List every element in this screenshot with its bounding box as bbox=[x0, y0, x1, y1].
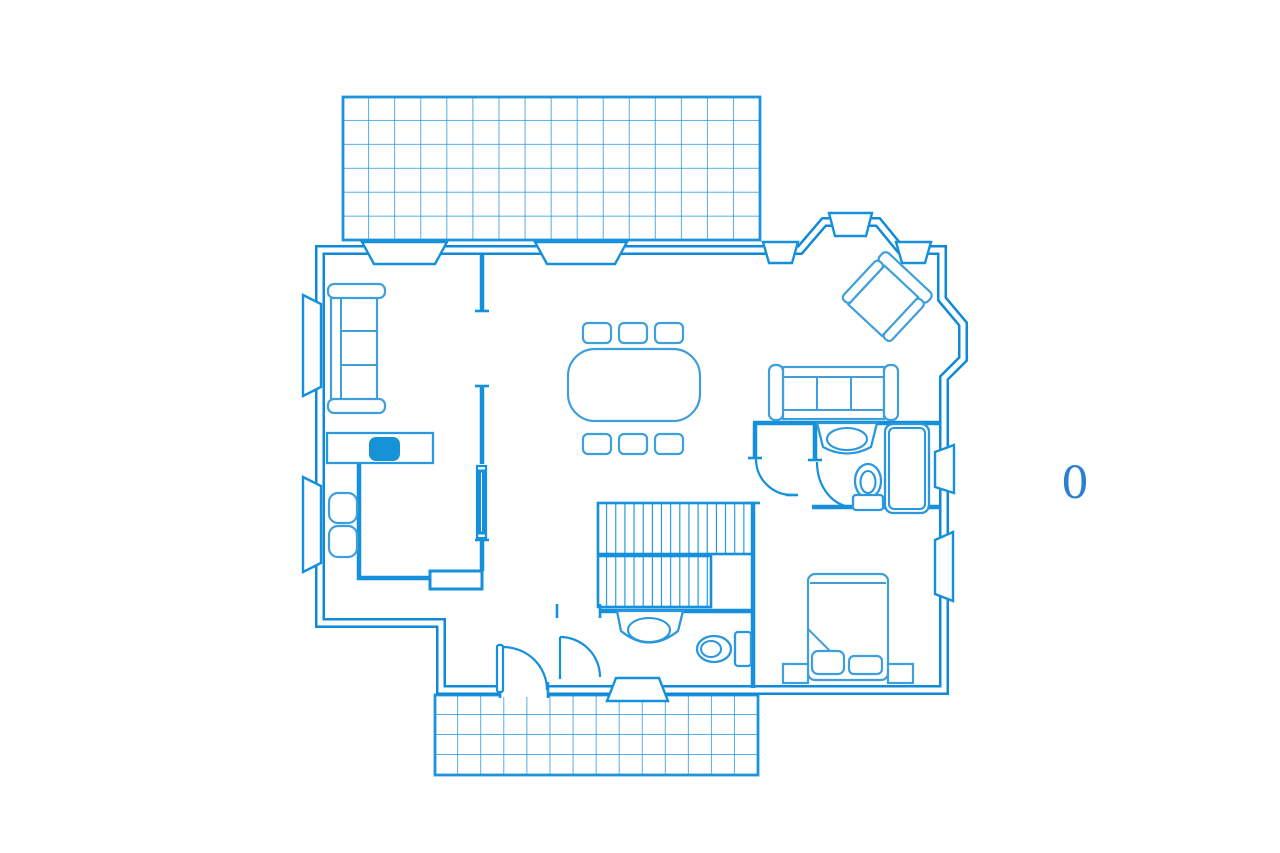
stairs-lower-run bbox=[598, 556, 711, 607]
pillow bbox=[849, 656, 882, 674]
dining-chair bbox=[655, 434, 683, 454]
dining-set bbox=[568, 323, 700, 454]
shower bbox=[885, 424, 929, 513]
sofa-armrest bbox=[884, 365, 898, 420]
window-top-1 bbox=[362, 242, 447, 264]
dining-chair bbox=[619, 434, 647, 454]
nightstand bbox=[783, 664, 808, 683]
dining-chair bbox=[583, 323, 611, 343]
lounge-sofa bbox=[769, 365, 898, 420]
sofa-armrest bbox=[328, 399, 385, 413]
window-right-1 bbox=[935, 445, 954, 493]
dining-chair bbox=[619, 323, 647, 343]
floor-plan-canvas: 0 bbox=[0, 0, 1280, 853]
sofa-armrest bbox=[769, 365, 783, 420]
floor-plan-page: 0 bbox=[0, 0, 1280, 853]
nightstand bbox=[888, 664, 913, 683]
dining-table bbox=[568, 349, 700, 421]
sofa-armrest bbox=[328, 284, 385, 298]
window-left-1 bbox=[303, 295, 321, 396]
bottom-deck bbox=[435, 695, 758, 775]
window-top-3 bbox=[763, 242, 798, 263]
window-right-2 bbox=[935, 532, 953, 601]
bar-stool bbox=[329, 493, 357, 523]
living-sofa bbox=[328, 284, 385, 413]
top-deck bbox=[343, 97, 760, 240]
window-bottom bbox=[607, 678, 668, 701]
kitchen-sink bbox=[369, 437, 400, 461]
pocket-door bbox=[477, 466, 486, 538]
window-top-4 bbox=[896, 242, 931, 263]
dining-chair bbox=[655, 323, 683, 343]
window-left-2 bbox=[303, 477, 321, 572]
bar-stool bbox=[329, 526, 357, 557]
window-top-2 bbox=[535, 242, 627, 264]
toilet-tank bbox=[853, 495, 883, 510]
stairs-upper-run bbox=[598, 503, 753, 554]
lower-toilet-bowl bbox=[697, 636, 731, 662]
dining-chair bbox=[583, 434, 611, 454]
window-bay bbox=[829, 213, 872, 236]
lower-toilet-tank bbox=[735, 632, 751, 666]
level-label: 0 bbox=[1061, 458, 1089, 509]
pillow bbox=[812, 651, 844, 674]
